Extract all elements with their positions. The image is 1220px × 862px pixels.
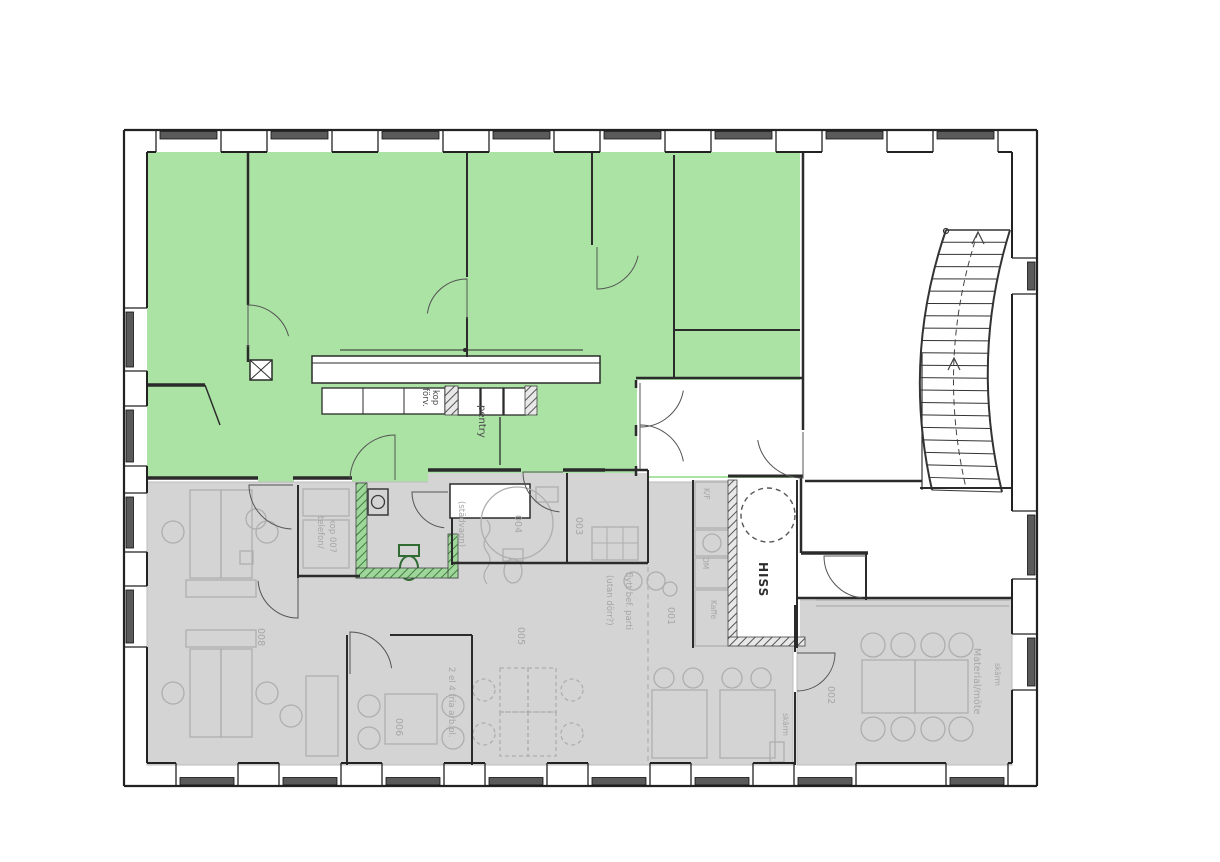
wc-wall-left	[356, 483, 367, 578]
vestibule-white	[637, 380, 800, 476]
label-room-001: 001	[665, 607, 676, 625]
label-forv: förv.	[420, 388, 430, 407]
label-room-008: 008	[255, 628, 266, 646]
stair-tread	[922, 427, 991, 428]
label-room-003: 003	[573, 517, 584, 535]
hiss-wall-left	[728, 480, 737, 640]
window-glass	[489, 778, 543, 786]
label-telefon-2: kop 007	[327, 519, 337, 553]
window-glass	[1028, 515, 1036, 575]
window-glass	[126, 497, 134, 548]
window-glass	[126, 410, 134, 462]
window-glass	[604, 132, 661, 140]
label-kop: kop	[430, 390, 440, 405]
label-room-006: 006	[393, 718, 404, 736]
label-material: Material/möte	[971, 648, 982, 715]
gray-zone-wc-block-top	[428, 473, 648, 485]
window-glass	[695, 778, 749, 786]
gray-zone-kitchen	[693, 480, 733, 648]
label-stadvagn: (städvagn)	[456, 501, 466, 547]
window-glass	[937, 132, 994, 140]
highlight-zones	[147, 152, 1012, 765]
label-hiss: HISS	[756, 562, 770, 597]
window-glass	[126, 312, 134, 367]
window-glass	[950, 778, 1004, 786]
window-glass	[180, 778, 234, 786]
label-telefon-1: telefon/	[315, 516, 325, 549]
window-glass	[271, 132, 328, 140]
label-skarm-right: skärm	[993, 663, 1002, 686]
label-pentry: pentry	[476, 405, 487, 438]
window-glass	[1028, 638, 1036, 686]
label-skarm-left: skärm	[781, 713, 790, 736]
counter-cap-right	[525, 386, 537, 415]
stair-tread	[920, 378, 988, 379]
label-flytt-1: flytt bef. parti	[623, 572, 633, 630]
label-arbpl: 2 el 4 fria arb.pl.	[446, 667, 456, 738]
hiss-wall-bottom	[728, 637, 805, 646]
window-glass	[493, 132, 550, 140]
walk-line	[954, 232, 979, 488]
wc-wall-bottom	[356, 568, 458, 578]
window-glass	[386, 778, 440, 786]
floor-plan-drawing: kop förv. pentry HISS telefon/ kop 007 0…	[0, 0, 1220, 862]
window-glass	[826, 132, 883, 140]
label-flytt-2: (utan dörr?)	[604, 575, 614, 626]
floor-plan-page: kop förv. pentry HISS telefon/ kop 007 0…	[0, 0, 1220, 862]
label-room-004: 004	[512, 515, 523, 533]
window-glass	[283, 778, 337, 786]
cabinet-cell	[504, 388, 526, 415]
window-glass	[1028, 262, 1036, 290]
window-glass	[160, 132, 217, 140]
counter-cap-left	[445, 386, 458, 415]
window-glass	[798, 778, 852, 786]
label-room-005: 005	[515, 627, 526, 645]
window-glass	[715, 132, 772, 140]
stair-tread	[932, 490, 1002, 492]
window-glass	[382, 132, 439, 140]
stair-tread	[927, 465, 997, 467]
label-kaffe: Kaffe	[709, 600, 718, 620]
staircase	[920, 229, 1010, 493]
window-glass	[592, 778, 646, 786]
door-corridor	[824, 556, 866, 598]
window-glass	[126, 590, 134, 643]
stair-rail-right	[988, 230, 1010, 492]
label-kf: K/F	[702, 488, 711, 500]
stair-rail-left	[920, 230, 946, 490]
label-dm: DM	[701, 557, 710, 569]
label-room-002: 002	[825, 686, 836, 704]
pantry-long-table	[312, 356, 600, 383]
